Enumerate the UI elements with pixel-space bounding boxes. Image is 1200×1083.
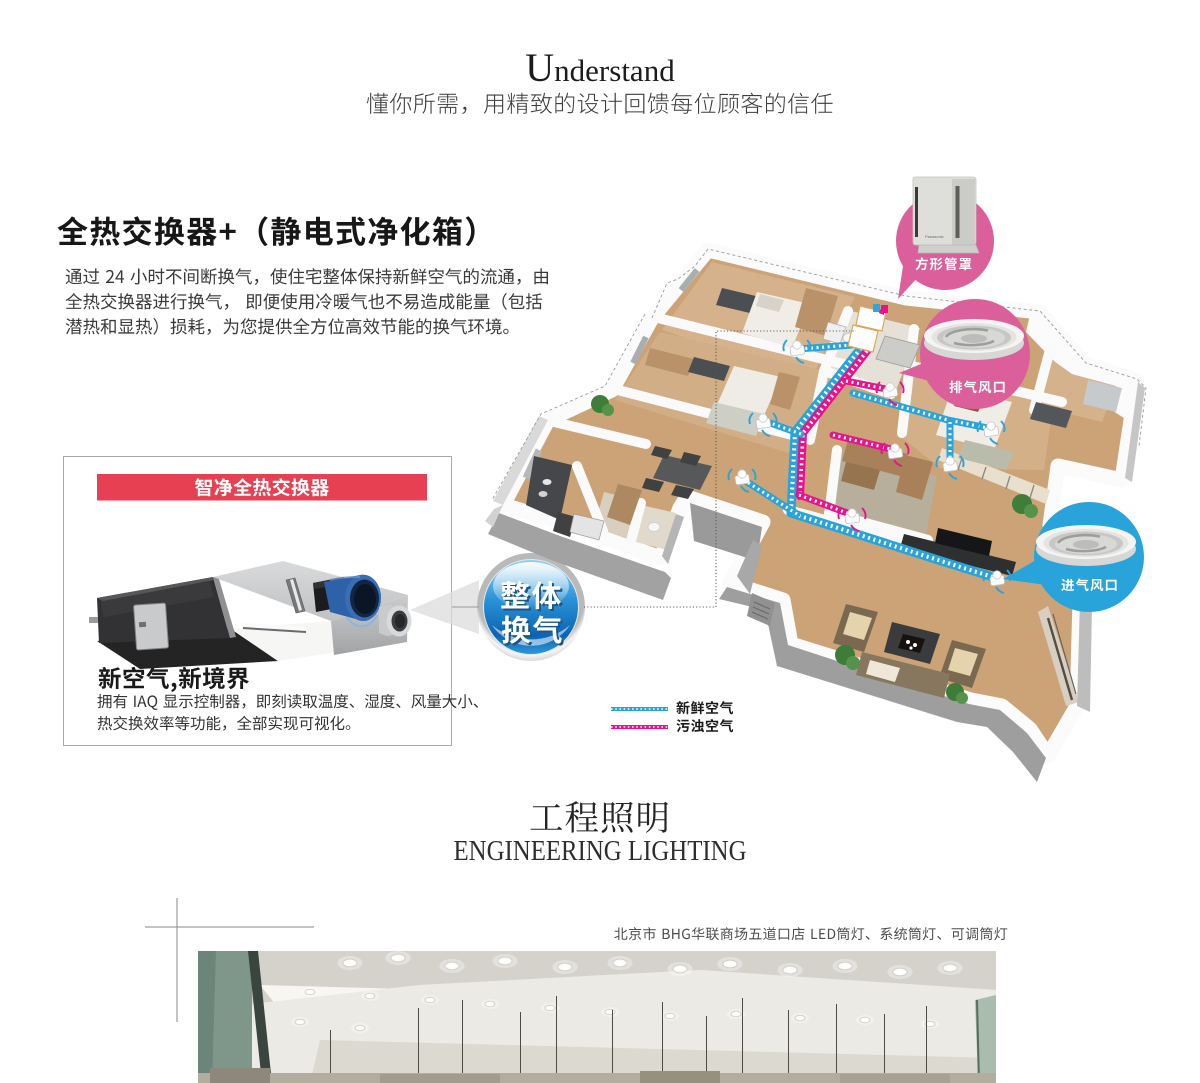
svg-text:Understand: Understand — [525, 45, 675, 90]
svg-text:Panasonic: Panasonic — [925, 234, 944, 239]
svg-text:ENGINEERING LIGHTING: ENGINEERING LIGHTING — [454, 836, 747, 867]
